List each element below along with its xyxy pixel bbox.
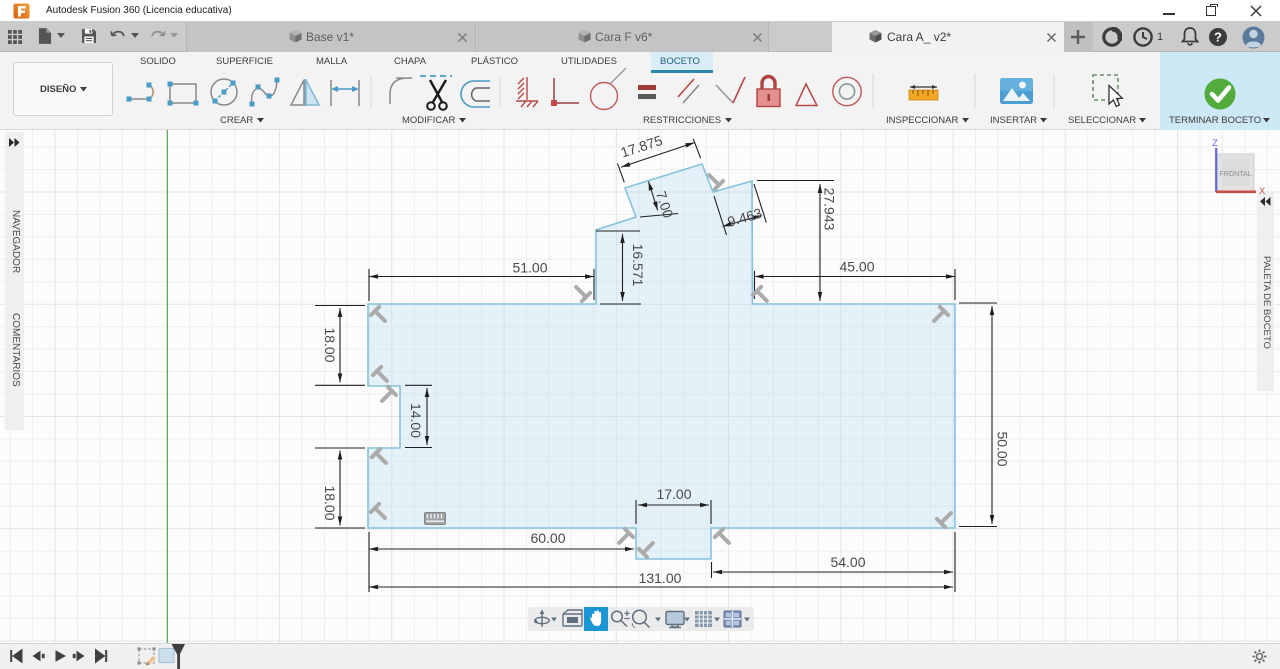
- svg-text:131.00: 131.00: [639, 570, 682, 586]
- svg-text:18.00: 18.00: [322, 485, 338, 520]
- svg-text:54.00: 54.00: [830, 554, 865, 570]
- svg-text:17.875: 17.875: [619, 132, 665, 161]
- svg-text:Z: Z: [1212, 138, 1218, 149]
- svg-text:60.00: 60.00: [530, 530, 565, 546]
- svg-text:14.00: 14.00: [408, 403, 424, 438]
- svg-text:?: ?: [1214, 30, 1222, 45]
- svg-text:16.571: 16.571: [630, 244, 646, 287]
- svg-text:27.943: 27.943: [822, 188, 838, 231]
- svg-text:18.00: 18.00: [322, 327, 338, 362]
- svg-text:50.00: 50.00: [995, 431, 1011, 466]
- svg-text:17.00: 17.00: [656, 486, 691, 502]
- svg-text:45.00: 45.00: [839, 259, 874, 275]
- svg-text:51.00: 51.00: [512, 260, 547, 276]
- svg-text:FRONTAL: FRONTAL: [1219, 171, 1251, 178]
